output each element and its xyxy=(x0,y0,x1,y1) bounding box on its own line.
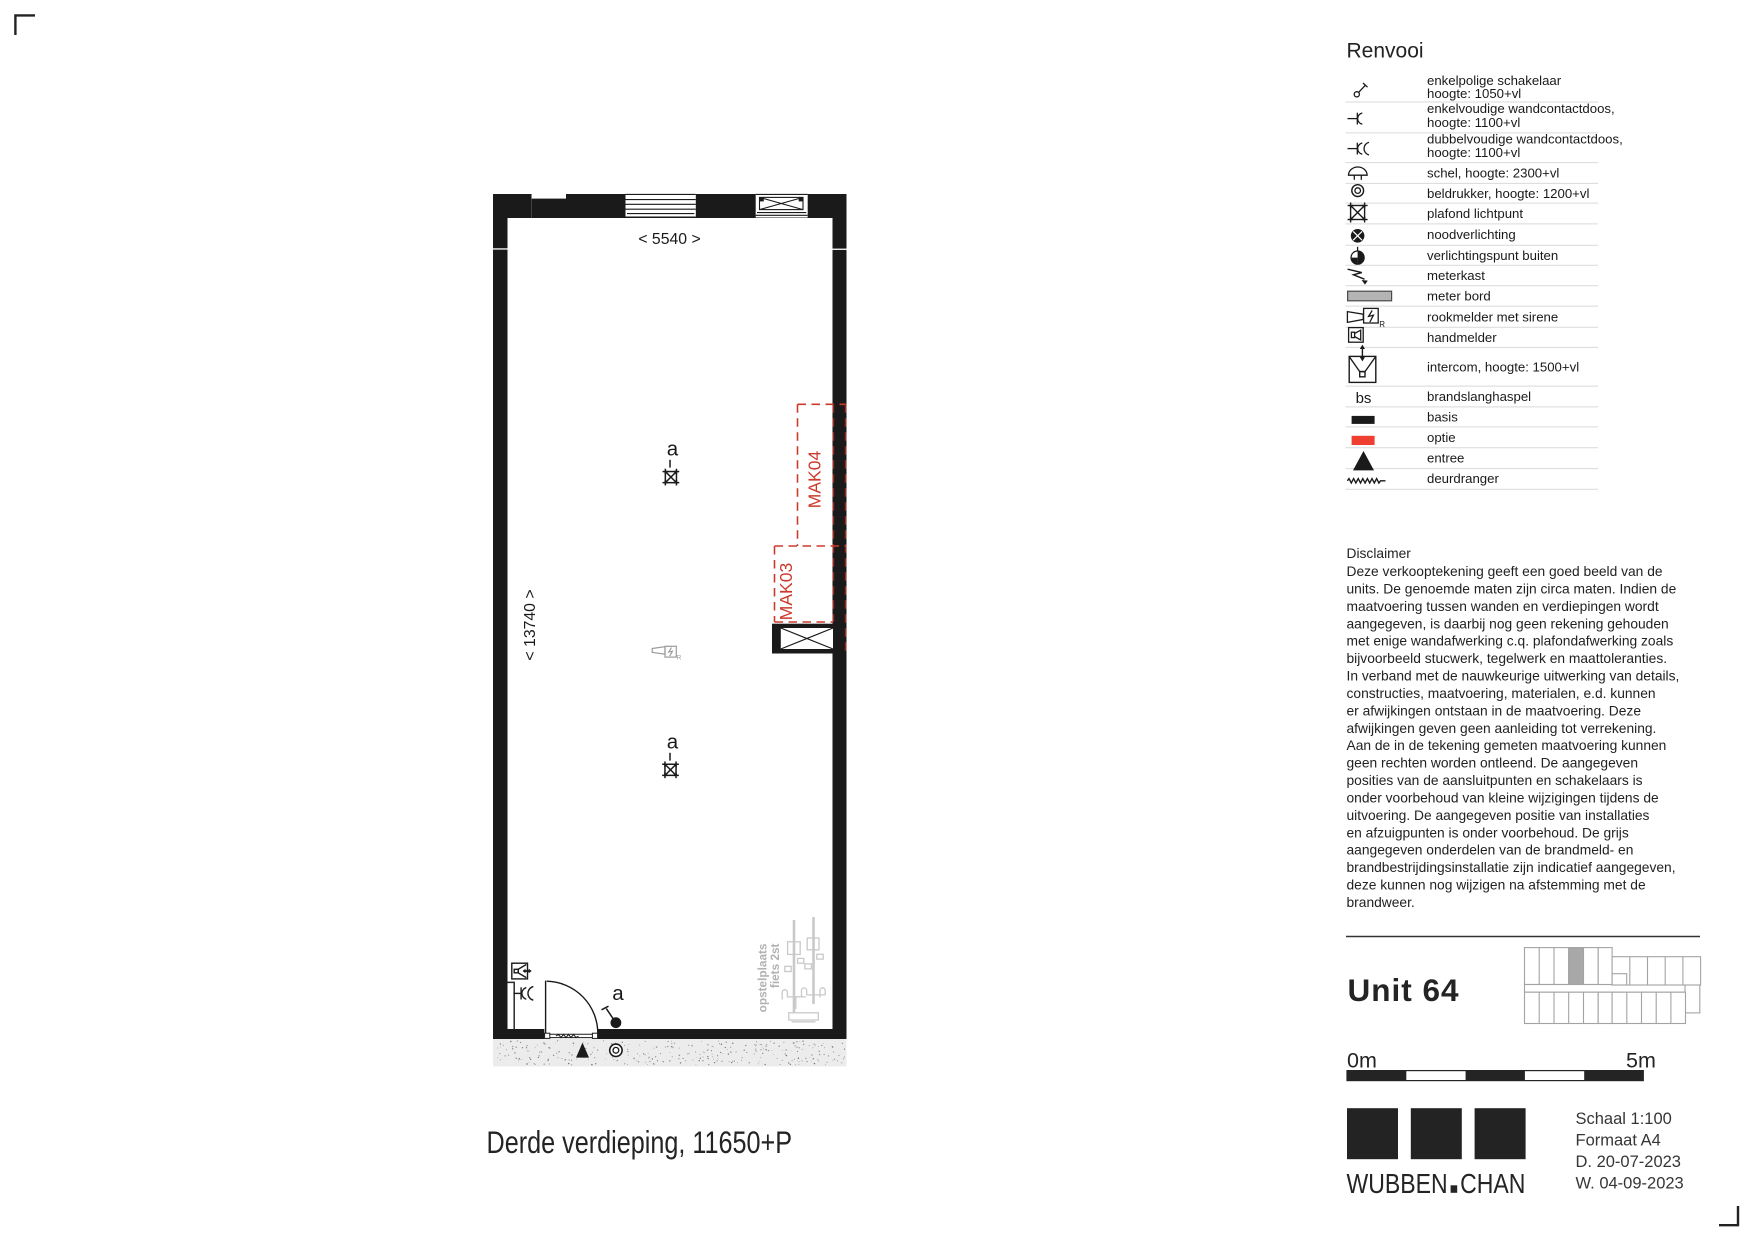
svg-text:beldrukker, hoogte: 1200+vl: beldrukker, hoogte: 1200+vl xyxy=(1427,186,1589,201)
svg-text:meter bord: meter bord xyxy=(1427,289,1491,304)
svg-text:a: a xyxy=(667,730,679,753)
svg-text:0m: 0m xyxy=(1347,1048,1377,1072)
svg-text:5m: 5m xyxy=(1626,1048,1656,1072)
svg-text:plafond lichtpunt: plafond lichtpunt xyxy=(1427,206,1523,221)
svg-text:Aan de in de tekening gemeten: Aan de in de tekening gemeten maatvoerin… xyxy=(1347,738,1667,753)
svg-text:< 5540 >: < 5540 > xyxy=(638,231,700,248)
svg-text:hoogte: 1100+vl: hoogte: 1100+vl xyxy=(1427,115,1520,130)
svg-text:CHAN: CHAN xyxy=(1460,1169,1525,1200)
svg-text:D. 20-07-2023: D. 20-07-2023 xyxy=(1576,1153,1682,1171)
svg-text:entree: entree xyxy=(1427,450,1464,465)
svg-text:WUBBEN: WUBBEN xyxy=(1347,1169,1448,1200)
svg-text:optie: optie xyxy=(1427,430,1456,445)
svg-text:Derde verdieping, 11650+P: Derde verdieping, 11650+P xyxy=(487,1125,793,1160)
svg-text:handmelder: handmelder xyxy=(1427,330,1497,345)
svg-text:onder voorbehoud van kleine wi: onder voorbehoud van kleine wijzigingen … xyxy=(1347,791,1660,806)
svg-text:fiets 2st: fiets 2st xyxy=(768,943,782,988)
svg-text:geen rechten worden ontleend.: geen rechten worden ontleend. De aangege… xyxy=(1347,756,1639,771)
svg-text:MAK03: MAK03 xyxy=(776,563,796,620)
svg-text:R: R xyxy=(677,655,682,662)
svg-text:rookmelder met sirene: rookmelder met sirene xyxy=(1427,309,1558,324)
svg-text:afwijkingen geven geen aanleid: afwijkingen geven geen aanleiding tot ve… xyxy=(1347,721,1657,736)
svg-text:Renvooi: Renvooi xyxy=(1347,40,1424,63)
svg-text:er afwijkingen ontstaan in de: er afwijkingen ontstaan in de maatvoerin… xyxy=(1347,703,1642,718)
svg-text:Schaal 1:100: Schaal 1:100 xyxy=(1576,1110,1672,1128)
svg-text:W. 04-09-2023: W. 04-09-2023 xyxy=(1576,1175,1684,1193)
svg-text:noodverlichting: noodverlichting xyxy=(1427,227,1516,242)
svg-text:bs: bs xyxy=(1356,390,1372,407)
svg-text:brandweer.: brandweer. xyxy=(1347,895,1415,910)
svg-text:deurdranger: deurdranger xyxy=(1427,471,1499,486)
svg-text:hoogte: 1050+vl: hoogte: 1050+vl xyxy=(1427,86,1521,101)
svg-text:brandbestrijdingsinstallatie z: brandbestrijdingsinstallatie zijn indica… xyxy=(1347,860,1676,875)
svg-text:constructies, maatvoering, mat: constructies, maatvoering, materialen, e… xyxy=(1347,686,1656,701)
svg-text:units. De genoemde maten zijn: units. De genoemde maten zijn circa mate… xyxy=(1347,581,1677,596)
svg-text:a: a xyxy=(612,982,624,1005)
svg-text:brandslanghaspel: brandslanghaspel xyxy=(1427,389,1531,404)
svg-text:met enige wandafwerking c.q. p: met enige wandafwerking c.q. plafondafwe… xyxy=(1347,634,1674,649)
svg-text:maatvoering tussen wanden en v: maatvoering tussen wanden en verdiepinge… xyxy=(1347,599,1659,614)
svg-text:basis: basis xyxy=(1427,410,1458,425)
svg-text:MAK04: MAK04 xyxy=(805,451,825,509)
svg-text:bijvoorbeeld stucwerk, tegelwe: bijvoorbeeld stucwerk, tegelwerk en maat… xyxy=(1347,651,1668,666)
svg-text:Deze verkooptekening geeft een: Deze verkooptekening geeft een goed beel… xyxy=(1347,564,1663,579)
svg-text:en afzuigpunten is onder voorb: en afzuigpunten is onder voorbehoud. De … xyxy=(1347,825,1629,840)
svg-text:uitvoering. De aangegeven posi: uitvoering. De aangegeven positie van in… xyxy=(1347,808,1650,823)
svg-text:Formaat A4: Formaat A4 xyxy=(1576,1131,1661,1149)
svg-text:aangegeven, is daarbij nog gee: aangegeven, is daarbij nog geen rekening… xyxy=(1347,616,1669,631)
svg-text:schel, hoogte: 2300+vl: schel, hoogte: 2300+vl xyxy=(1427,166,1559,181)
svg-text:verlichtingspunt buiten: verlichtingspunt buiten xyxy=(1427,248,1558,263)
svg-text:intercom, hoogte: 1500+vl: intercom, hoogte: 1500+vl xyxy=(1427,359,1579,374)
svg-text:Disclaimer: Disclaimer xyxy=(1347,546,1412,561)
svg-text:In verband met de nauwkeurige: In verband met de nauwkeurige uitwerking… xyxy=(1347,669,1680,684)
svg-text:< 13740 >: < 13740 > xyxy=(522,589,539,660)
svg-text:a: a xyxy=(667,437,679,460)
svg-text:aangegeven onderdelen van de b: aangegeven onderdelen van de brandmeld- … xyxy=(1347,843,1634,858)
svg-text:posities van de aansluitpunten: posities van de aansluitpunten en schake… xyxy=(1347,773,1643,788)
svg-text:meterkast: meterkast xyxy=(1427,268,1485,283)
svg-text:R: R xyxy=(1379,320,1385,329)
svg-text:deze kunnen nog wijzigen na af: deze kunnen nog wijzigen na afstemming m… xyxy=(1347,878,1646,893)
svg-text:hoogte: 1100+vl: hoogte: 1100+vl xyxy=(1427,145,1520,160)
svg-text:Unit 64: Unit 64 xyxy=(1348,972,1460,1008)
